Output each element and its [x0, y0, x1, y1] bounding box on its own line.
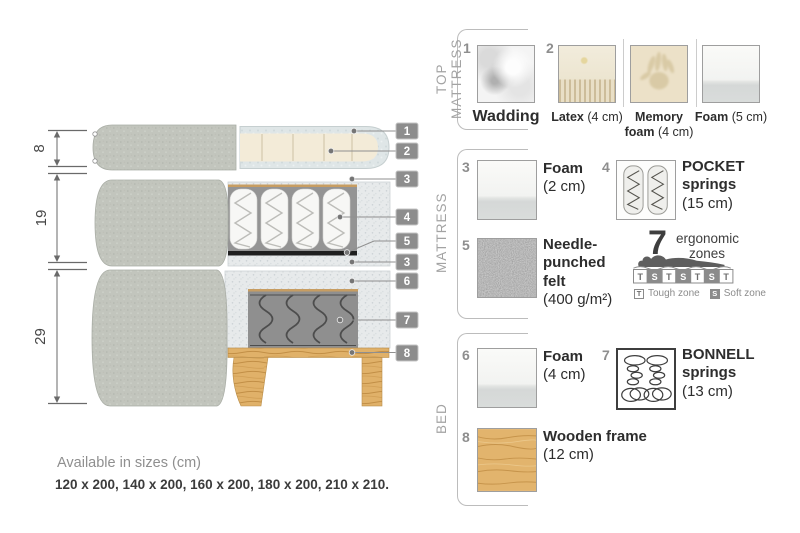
svg-text:4: 4: [404, 212, 411, 224]
svg-text:3: 3: [404, 257, 410, 269]
svg-text:S: S: [652, 272, 658, 282]
svg-text:2: 2: [404, 146, 410, 158]
wadding-caption: Wadding: [460, 108, 552, 127]
soft-zone-label: Soft zone: [724, 288, 766, 299]
bonnell-springs-swatch: [616, 348, 676, 410]
tough-zone-label: Tough zone: [648, 288, 700, 299]
dimension-bed-height: 29: [32, 270, 87, 404]
foam-5cm-swatch: [702, 45, 760, 103]
felt-layer: [228, 251, 357, 256]
item-number-6: 6: [462, 347, 470, 363]
foam-2cm-caption: Foam (2 cm): [543, 160, 586, 197]
svg-text:T: T: [638, 272, 644, 282]
needle-punched-felt-swatch: [477, 238, 537, 298]
svg-text:T: T: [666, 272, 672, 282]
foam-2cm-swatch: [477, 160, 537, 220]
bed-fabric: [92, 270, 227, 406]
option-divider: [623, 39, 624, 107]
section-title-mattress: MATTRESS: [434, 150, 449, 316]
pocket-springs-swatch: [616, 160, 676, 220]
item-number-7: 7: [602, 347, 610, 363]
bed-construction-infographic: 8 19 29: [0, 0, 800, 533]
latex-caption: Latex (4 cm): [545, 110, 629, 125]
section-title-bed: BED: [434, 334, 449, 503]
sizes-values: 120 x 200, 140 x 200, 160 x 200, 180 x 2…: [55, 477, 389, 492]
memory-foam-caption: Memory foam (4 cm): [620, 110, 698, 140]
topper-latex-core: [240, 134, 378, 162]
foam-5cm-caption: Foam (5 cm): [690, 110, 772, 125]
hand-imprint-icon: [639, 52, 676, 90]
wooden-frame-swatch: [477, 428, 537, 492]
svg-text:8: 8: [404, 348, 411, 360]
wadding-swatch: [477, 45, 535, 103]
svg-text:6: 6: [404, 276, 410, 288]
bed-cross-section-diagram: 8 19 29: [0, 0, 430, 533]
svg-text:T: T: [695, 272, 701, 282]
topper-fabric: [93, 125, 236, 170]
ergonomic-zones-illustration: T S T S T S T: [632, 250, 735, 284]
foam-4cm-swatch: [477, 348, 537, 408]
dim-29-label: 29: [32, 328, 49, 345]
item-number-2: 2: [546, 40, 554, 56]
svg-text:S: S: [709, 272, 715, 282]
topper-layer: [93, 125, 389, 170]
mattress-top-strip: [228, 185, 357, 188]
foam-4cm-caption: Foam (4 cm): [543, 348, 586, 385]
tough-zone-key: T: [634, 289, 644, 299]
svg-text:S: S: [680, 272, 686, 282]
pocket-springs-caption: POCKET springs (15 cm): [682, 158, 745, 213]
soft-zone-key: S: [710, 289, 720, 299]
item-number-4: 4: [602, 159, 610, 175]
bonnell-coil-icon: [622, 356, 671, 402]
felt-caption: Needle- punched felt (400 g/m²): [543, 236, 612, 309]
item-number-8: 8: [462, 429, 470, 445]
svg-text:T: T: [723, 272, 729, 282]
topper-button: [93, 132, 97, 136]
item-number-5: 5: [462, 237, 470, 253]
latex-swatch: [558, 45, 616, 103]
sleeping-person-icon: [638, 255, 724, 267]
svg-text:1: 1: [404, 126, 411, 138]
svg-text:7: 7: [404, 315, 410, 327]
left-leg: [233, 358, 268, 407]
bed-top-strip: [248, 289, 358, 292]
topper-button: [93, 159, 97, 163]
dim-8-label: 8: [31, 144, 48, 152]
zone-strip: T S T S T S T: [634, 270, 733, 284]
dimension-mattress-height: 19: [33, 174, 87, 263]
memory-foam-swatch: [630, 45, 688, 103]
sizes-heading: Available in sizes (cm): [57, 455, 201, 471]
bonnell-springs-caption: BONNELL springs (13 cm): [682, 346, 755, 401]
wooden-frame-caption: Wooden frame (12 cm): [543, 428, 647, 465]
dim-19-label: 19: [33, 210, 50, 227]
dimension-top-mattress-height: 8: [31, 131, 87, 167]
item-number-1: 1: [463, 40, 471, 56]
mattress-fabric: [95, 180, 228, 266]
option-divider: [696, 39, 697, 107]
svg-text:5: 5: [404, 236, 411, 248]
bed-base-layer: [92, 270, 390, 406]
zone-legend: T Tough zone S Soft zone: [634, 288, 766, 299]
item-number-3: 3: [462, 159, 470, 175]
right-leg: [362, 358, 382, 407]
svg-text:3: 3: [404, 174, 410, 186]
